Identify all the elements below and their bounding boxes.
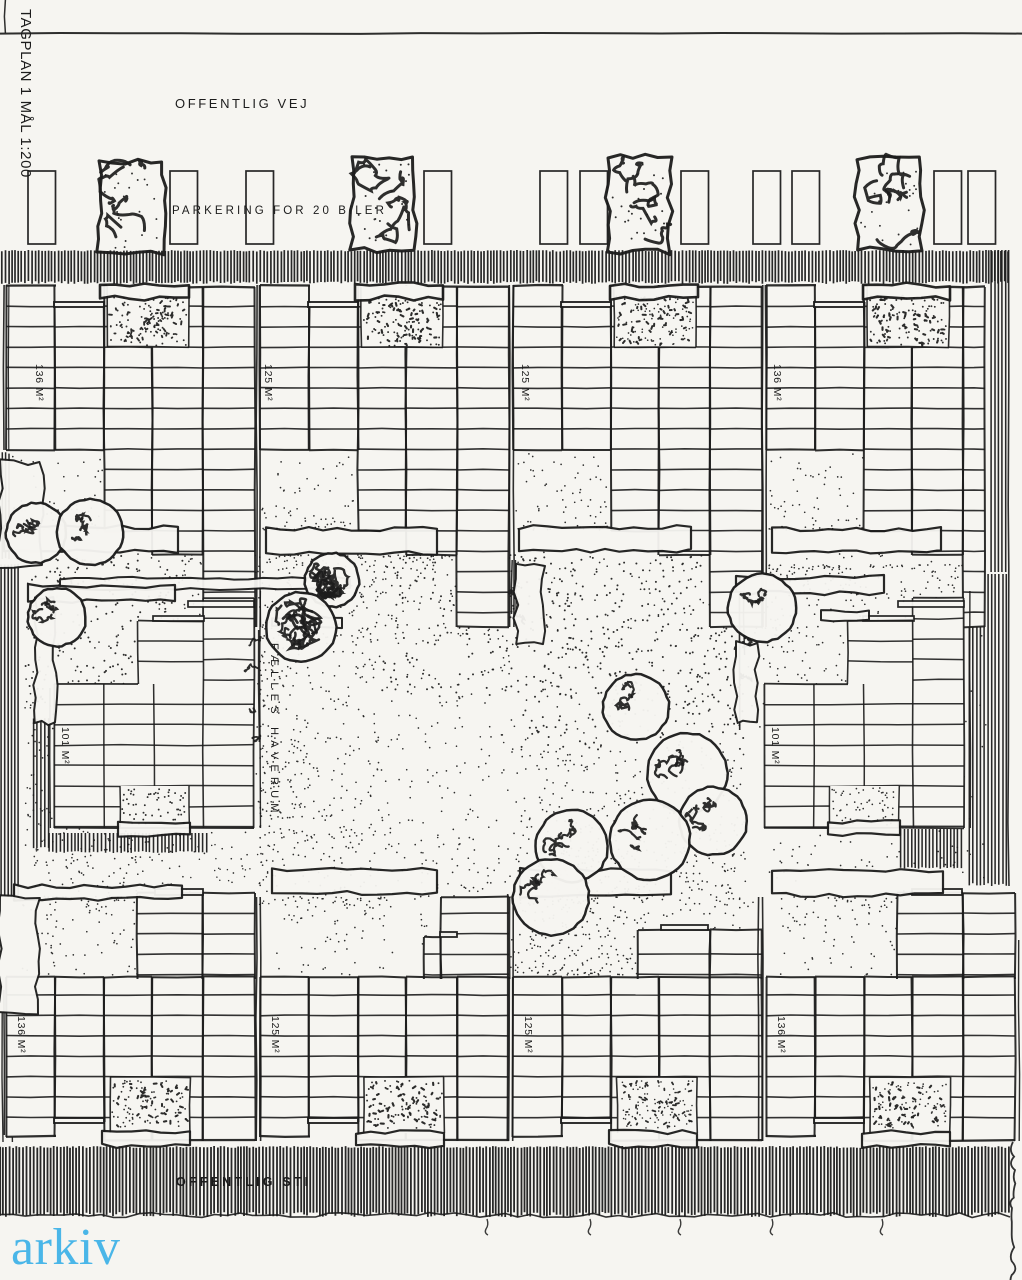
- svg-text:136 M²: 136 M²: [775, 1016, 787, 1053]
- svg-text:arkiv: arkiv: [11, 1219, 120, 1276]
- svg-text:TAGPLAN 1 MÅL 1:200: TAGPLAN 1 MÅL 1:200: [17, 9, 34, 178]
- svg-text:FÆLLES HAVERUM: FÆLLES HAVERUM: [268, 643, 280, 818]
- svg-text:136 M²: 136 M²: [771, 364, 783, 401]
- svg-text:101 M²: 101 M²: [59, 727, 71, 764]
- svg-text:OFFENTLIG STI: OFFENTLIG STI: [176, 1175, 311, 1189]
- svg-text:101 M²: 101 M²: [769, 727, 781, 764]
- svg-text:125 M²: 125 M²: [519, 364, 531, 401]
- svg-text:125 M²: 125 M²: [269, 1016, 281, 1053]
- svg-text:136 M²: 136 M²: [15, 1016, 27, 1053]
- svg-text:125 M²: 125 M²: [262, 364, 274, 401]
- svg-text:125 M²: 125 M²: [522, 1016, 534, 1053]
- svg-text:136 M²: 136 M²: [33, 364, 45, 401]
- svg-text:OFFENTLIG VEJ: OFFENTLIG VEJ: [175, 96, 309, 111]
- svg-text:PARKERING FOR 20 BILER: PARKERING FOR 20 BILER: [172, 205, 387, 217]
